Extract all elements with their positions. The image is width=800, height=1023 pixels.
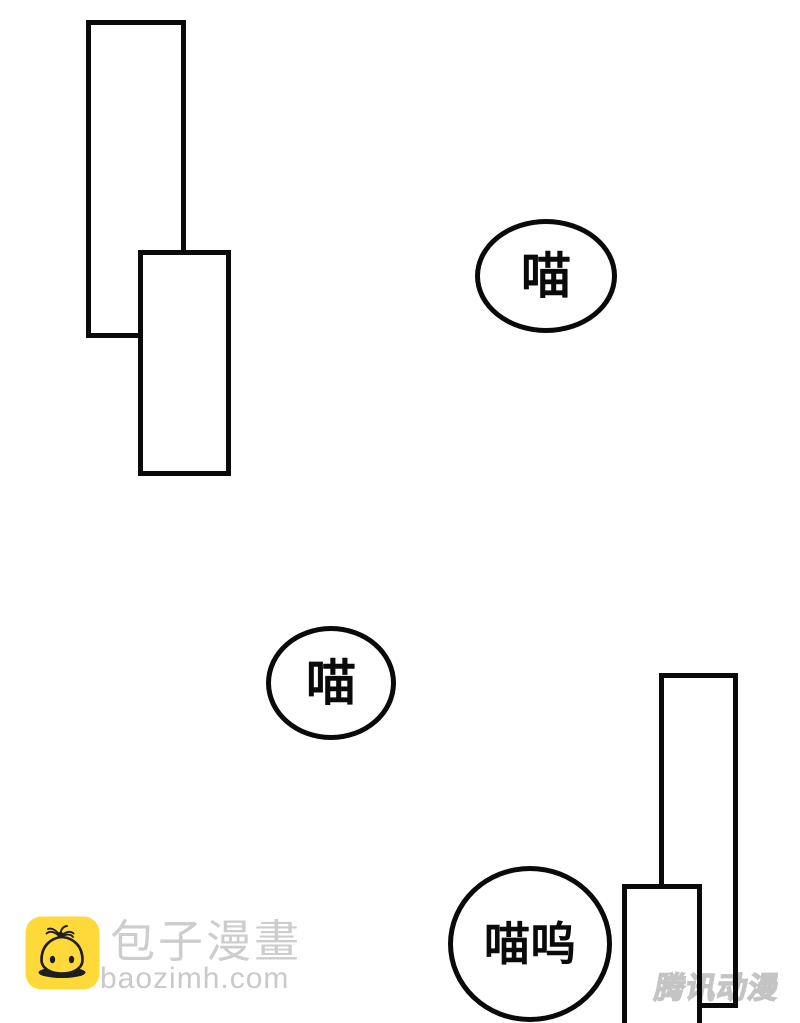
speech-bubble-1-text: 喵 xyxy=(521,251,571,301)
speech-bubble-3-text: 喵呜 xyxy=(484,921,576,967)
baozi-right-eye xyxy=(69,956,74,963)
speech-bubble-2-text: 喵 xyxy=(306,658,356,708)
tencent-comics-watermark: 腾讯动漫 xyxy=(652,974,781,1004)
baozimh-site-name: 包子漫畫 xyxy=(110,919,302,964)
baozi-bun-icon xyxy=(25,916,100,990)
speech-bubble-1: 喵 xyxy=(475,219,617,333)
panel-rect-top-left-lower xyxy=(138,250,231,476)
speech-bubble-2: 喵 xyxy=(266,626,396,740)
baozi-left-eye xyxy=(50,956,55,963)
speech-bubble-3: 喵呜 xyxy=(448,866,612,1022)
comic-page: 腾讯动漫 喵 喵 喵呜 包子漫畫 baozimh.com xyxy=(0,0,800,1023)
baozimh-site-url: baozimh.com xyxy=(100,964,289,994)
baozi-body xyxy=(42,937,83,974)
